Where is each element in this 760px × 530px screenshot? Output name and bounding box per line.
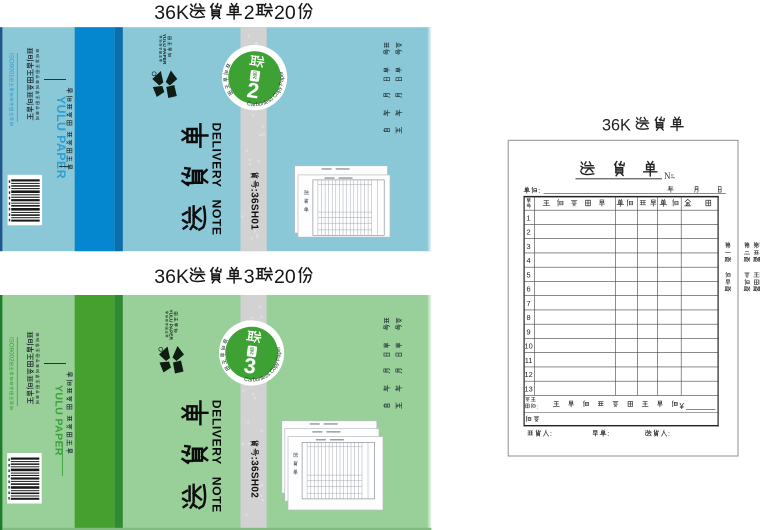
svg-text:NOTE: NOTE	[210, 200, 224, 236]
svg-text:¥: ¥	[679, 402, 685, 411]
svg-text:9: 9	[527, 327, 531, 336]
svg-text:7: 7	[527, 299, 531, 308]
svg-text:N: N	[664, 171, 671, 181]
svg-text:13: 13	[524, 384, 532, 393]
svg-text:5: 5	[527, 270, 531, 279]
svg-text::: :	[607, 431, 609, 438]
svg-text:8: 8	[527, 313, 531, 322]
svg-text::: :	[668, 431, 670, 438]
svg-text:3: 3	[244, 266, 255, 288]
svg-text:3: 3	[527, 242, 531, 251]
svg-text:DELIVERY: DELIVERY	[210, 400, 224, 465]
svg-text:2: 2	[244, 2, 255, 24]
svg-text::36SH01: :36SH01	[248, 189, 259, 231]
svg-text:12: 12	[524, 370, 532, 379]
svg-text:1: 1	[527, 213, 531, 222]
svg-text:36K: 36K	[154, 266, 189, 288]
svg-text:36K: 36K	[154, 2, 189, 24]
svg-text:4: 4	[527, 256, 531, 265]
svg-text:ISO9001: ISO9001	[8, 53, 15, 78]
svg-text::: :	[537, 405, 539, 411]
svg-text:YULU PAPER: YULU PAPER	[161, 34, 167, 65]
svg-text:20: 20	[274, 266, 296, 288]
svg-text:2: 2	[527, 228, 531, 237]
svg-text:NOTE: NOTE	[210, 477, 224, 513]
svg-text:10: 10	[524, 342, 532, 351]
svg-text:YULU PAPER: YULU PAPER	[167, 309, 173, 340]
svg-text:20: 20	[274, 2, 296, 24]
svg-text:6: 6	[527, 285, 531, 294]
svg-text:11: 11	[525, 356, 533, 365]
svg-text::36SH02: :36SH02	[248, 457, 259, 499]
svg-text:36K: 36K	[602, 116, 631, 134]
svg-text:ISO9002: ISO9002	[8, 337, 15, 362]
svg-text::: :	[538, 188, 540, 195]
svg-text:DELIVERY: DELIVERY	[210, 123, 224, 188]
svg-text::: :	[550, 431, 552, 438]
